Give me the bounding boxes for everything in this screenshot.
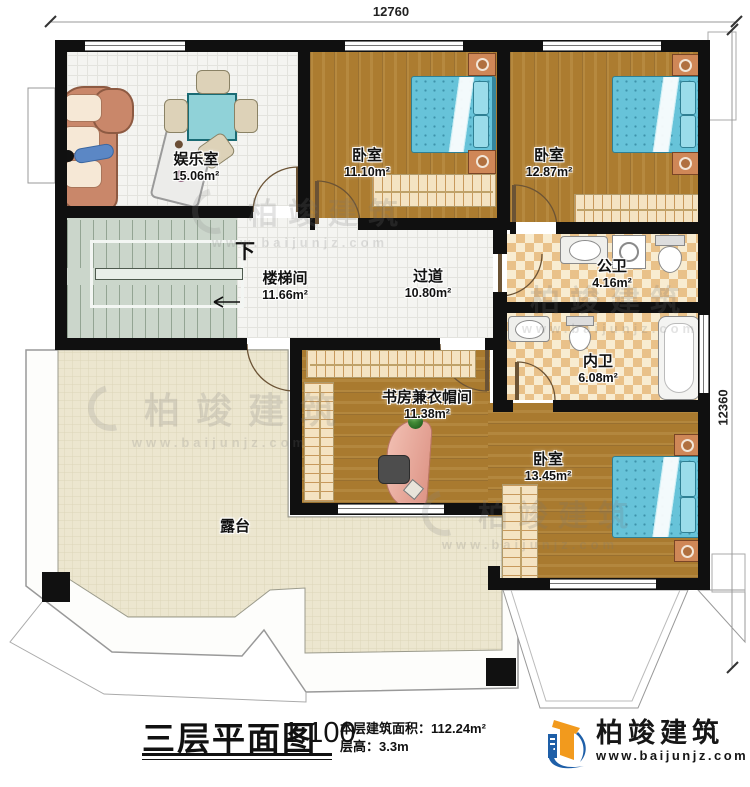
- bed: [612, 456, 703, 538]
- wall-segment: [493, 218, 507, 254]
- game-table: [187, 93, 237, 141]
- bed: [411, 76, 496, 153]
- room-area: 12.87m²: [526, 165, 573, 179]
- pillow: [680, 461, 696, 497]
- room-label-bedroom-3: 卧室 13.45m²: [473, 452, 623, 484]
- room-name: 卧室: [534, 147, 564, 164]
- room-name: 书房兼衣帽间: [382, 389, 472, 406]
- wall-segment: [298, 40, 310, 218]
- room-area: 13.45m²: [525, 469, 572, 483]
- room-area: 15.06m²: [173, 169, 220, 183]
- wall-segment: [553, 400, 698, 412]
- wall-segment: [55, 40, 67, 350]
- room-label-inner-bath: 内卫 6.08m²: [523, 354, 673, 386]
- room-area: 4.16m²: [592, 276, 632, 290]
- wall-segment: [497, 40, 510, 230]
- chair: [196, 70, 230, 94]
- window: [85, 41, 185, 51]
- wall-segment: [556, 222, 698, 234]
- nightstand: [672, 54, 699, 76]
- room-name: 娱乐室: [173, 151, 218, 168]
- dimension-top: 12760: [356, 4, 426, 19]
- wardrobe: [306, 350, 476, 378]
- room-label-terrace: 露台: [160, 519, 310, 535]
- wardrobe: [304, 382, 334, 502]
- balcony-outline: [503, 590, 688, 708]
- window: [543, 41, 661, 51]
- window: [338, 504, 444, 514]
- wall-segment: [507, 302, 698, 313]
- toilet-tank: [655, 235, 685, 246]
- wall-segment: [55, 338, 247, 350]
- office-chair: [378, 455, 410, 484]
- room-area: 11.10m²: [344, 165, 390, 179]
- blanket: [448, 77, 473, 152]
- railing-post: [42, 572, 70, 602]
- pillow: [680, 115, 696, 149]
- sofa-cushion: [64, 94, 102, 122]
- stair-down-label: 下: [235, 235, 255, 264]
- room-name: 露台: [220, 518, 250, 535]
- wall-segment: [510, 222, 516, 234]
- room-label-public-bath: 公卫 4.16m²: [537, 259, 687, 291]
- toilet-tank: [566, 316, 594, 326]
- blanket: [652, 457, 679, 537]
- room-area: 11.38m²: [404, 407, 450, 421]
- nightstand: [674, 434, 700, 456]
- wall-segment: [302, 338, 440, 350]
- sink-icon: [515, 320, 544, 339]
- pillow: [473, 115, 489, 149]
- nightstand: [672, 152, 699, 175]
- room-name: 过道: [413, 268, 443, 285]
- wall-segment: [55, 206, 253, 218]
- pillow: [680, 81, 696, 115]
- room-area: 6.08m²: [578, 371, 618, 385]
- window: [699, 315, 709, 393]
- room-label-bedroom-2: 卧室 12.87m²: [474, 148, 624, 180]
- window: [550, 579, 656, 589]
- dimension-right: 12360: [716, 373, 731, 443]
- room-name: 楼梯间: [262, 270, 307, 287]
- room-label-stairwell: 楼梯间 11.66m²: [210, 271, 360, 303]
- wardrobe: [574, 194, 700, 223]
- room-area: 11.66m²: [262, 288, 308, 302]
- room-name: 卧室: [352, 147, 382, 164]
- chair: [164, 99, 188, 133]
- chair: [234, 99, 258, 133]
- wardrobe: [502, 484, 538, 586]
- bed: [612, 76, 703, 153]
- pillow: [680, 497, 696, 533]
- sink-counter: [508, 316, 550, 342]
- blanket: [652, 77, 678, 152]
- wall-segment: [493, 292, 507, 403]
- room-label-bedroom-1: 卧室 11.10m²: [292, 148, 442, 180]
- room-label-hallway: 过道 10.80m²: [353, 269, 503, 301]
- railing-post: [486, 658, 516, 686]
- chimney-outline: [28, 88, 55, 183]
- wall-segment: [298, 206, 310, 218]
- floor-plan-page: 娱乐室 15.06m² 卧室 11.10m² 卧室 12.87m² 公卫 4.1…: [0, 0, 750, 787]
- room-area: 10.80m²: [405, 286, 452, 300]
- rug-decor: [174, 140, 184, 150]
- window: [345, 41, 463, 51]
- room-label-entertainment: 娱乐室 15.06m²: [121, 152, 271, 184]
- room-name: 内卫: [583, 353, 613, 370]
- room-name: 公卫: [597, 258, 627, 275]
- nightstand: [468, 53, 496, 76]
- pillow: [473, 81, 489, 115]
- wall-segment: [485, 338, 493, 350]
- wall-segment: [358, 218, 497, 230]
- wall-segment: [290, 338, 302, 515]
- sofa-cushion: [64, 160, 102, 188]
- room-name: 卧室: [533, 451, 563, 468]
- wall-segment: [310, 218, 315, 230]
- room-label-study: 书房兼衣帽间 11.38m²: [352, 390, 502, 422]
- nightstand: [674, 540, 700, 562]
